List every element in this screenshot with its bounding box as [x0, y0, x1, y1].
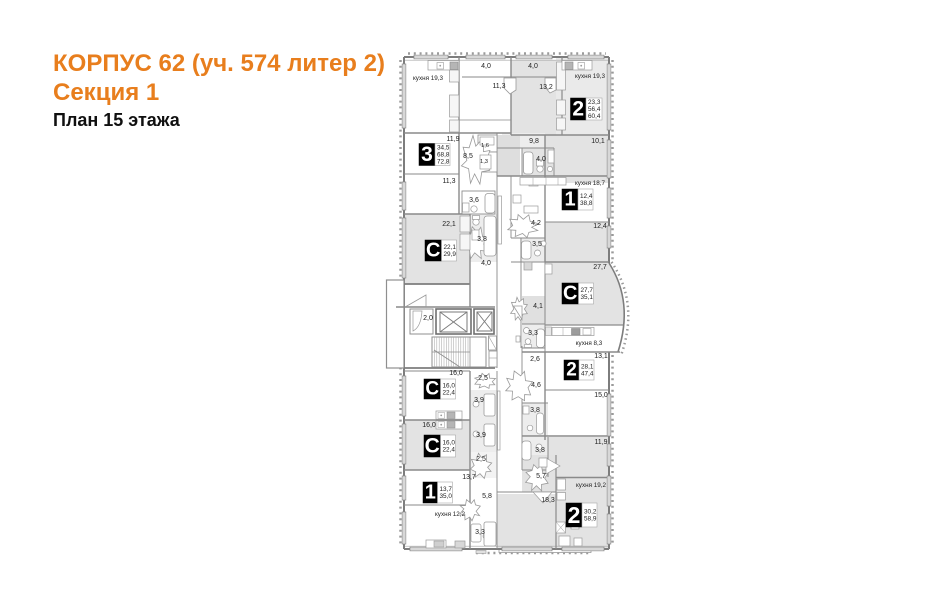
- svg-text:4,6: 4,6: [531, 382, 541, 389]
- svg-text:29,9: 29,9: [444, 251, 457, 258]
- svg-text:16,0: 16,0: [443, 440, 456, 447]
- svg-text:План 15 этажа: План 15 этажа: [53, 110, 181, 130]
- svg-text:2,0: 2,0: [423, 315, 433, 322]
- svg-text:Секция 1: Секция 1: [53, 79, 159, 106]
- svg-text:10,1: 10,1: [591, 138, 605, 145]
- svg-text:22,4: 22,4: [443, 390, 456, 397]
- svg-text:35,0: 35,0: [440, 493, 453, 500]
- svg-text:27,7: 27,7: [581, 287, 594, 294]
- svg-text:2: 2: [566, 360, 577, 381]
- svg-text:3: 3: [421, 143, 433, 166]
- svg-text:3,3: 3,3: [528, 330, 538, 337]
- svg-text:3,6: 3,6: [469, 197, 479, 204]
- svg-text:C: C: [425, 379, 439, 400]
- svg-text:C: C: [425, 435, 440, 458]
- svg-text:13,2: 13,2: [539, 84, 553, 91]
- svg-text:18,3: 18,3: [541, 497, 555, 504]
- svg-text:9,8: 9,8: [529, 138, 539, 145]
- svg-text:3,8: 3,8: [477, 236, 487, 243]
- svg-text:1: 1: [425, 482, 436, 504]
- svg-text:47,4: 47,4: [581, 371, 594, 378]
- svg-text:16,0: 16,0: [443, 383, 456, 390]
- svg-text:12,4: 12,4: [580, 193, 593, 200]
- svg-text:2,6: 2,6: [530, 356, 540, 363]
- svg-text:16,0: 16,0: [422, 422, 436, 429]
- svg-text:13,7: 13,7: [462, 474, 476, 481]
- svg-text:1: 1: [564, 189, 575, 211]
- svg-text:кухня 19,3: кухня 19,3: [575, 73, 606, 80]
- svg-text:1,6: 1,6: [481, 143, 489, 149]
- svg-text:60,4: 60,4: [588, 113, 601, 120]
- svg-text:22,1: 22,1: [442, 221, 456, 228]
- svg-text:13,7: 13,7: [440, 486, 453, 493]
- svg-text:12,4: 12,4: [593, 223, 607, 230]
- svg-text:22,1: 22,1: [444, 244, 457, 251]
- svg-text:5,8: 5,8: [482, 493, 492, 500]
- svg-text:11,9: 11,9: [446, 136, 459, 143]
- svg-text:35,1: 35,1: [581, 294, 594, 301]
- svg-text:56,4: 56,4: [588, 106, 601, 113]
- svg-text:4,1: 4,1: [533, 303, 543, 310]
- svg-text:2,5: 2,5: [478, 375, 488, 382]
- svg-text:2,5: 2,5: [476, 456, 486, 463]
- svg-text:27,7: 27,7: [593, 264, 607, 271]
- svg-text:5,7: 5,7: [536, 473, 546, 480]
- svg-text:4,0: 4,0: [481, 260, 491, 267]
- svg-text:3,8: 3,8: [530, 407, 540, 414]
- svg-text:3,9: 3,9: [474, 397, 484, 404]
- svg-text:3,5: 3,5: [532, 241, 542, 248]
- svg-text:28,1: 28,1: [581, 364, 594, 371]
- svg-text:11,9: 11,9: [594, 439, 607, 446]
- svg-text:кухня 19,2: кухня 19,2: [576, 482, 607, 489]
- svg-text:4,0: 4,0: [481, 63, 491, 70]
- svg-text:23,3: 23,3: [588, 99, 601, 106]
- svg-text:30,2: 30,2: [584, 509, 597, 516]
- svg-text:8,5: 8,5: [463, 153, 473, 160]
- svg-text:11,3: 11,3: [442, 178, 455, 185]
- svg-text:38,8: 38,8: [580, 200, 593, 207]
- svg-text:1,3: 1,3: [480, 159, 488, 165]
- svg-text:КОРПУС 62 (уч. 574 литер 2): КОРПУС 62 (уч. 574 литер 2): [53, 50, 385, 77]
- svg-text:22,4: 22,4: [443, 447, 456, 454]
- svg-text:кухня 19,3: кухня 19,3: [413, 75, 444, 82]
- svg-text:34,5: 34,5: [437, 145, 450, 152]
- svg-text:кухня 8,3: кухня 8,3: [576, 340, 603, 347]
- svg-text:3,3: 3,3: [475, 529, 485, 536]
- svg-text:15,0: 15,0: [594, 392, 608, 399]
- svg-text:2: 2: [572, 98, 584, 121]
- svg-text:16,0: 16,0: [449, 370, 463, 377]
- svg-text:68,8: 68,8: [437, 152, 450, 159]
- svg-text:C: C: [563, 283, 577, 305]
- svg-text:4,2: 4,2: [531, 220, 541, 227]
- svg-text:11,3: 11,3: [492, 83, 505, 90]
- svg-text:кухня 18,7: кухня 18,7: [575, 180, 606, 187]
- svg-text:72,8: 72,8: [437, 159, 450, 166]
- svg-text:3,9: 3,9: [476, 432, 486, 439]
- svg-text:кухня 12,2: кухня 12,2: [435, 511, 466, 518]
- svg-text:2: 2: [568, 502, 581, 528]
- svg-text:13,1: 13,1: [594, 353, 608, 360]
- svg-text:3,8: 3,8: [535, 447, 545, 454]
- svg-text:4,0: 4,0: [536, 156, 546, 163]
- svg-text:58,9: 58,9: [584, 516, 597, 523]
- svg-text:4,0: 4,0: [528, 63, 538, 70]
- svg-text:C: C: [426, 240, 440, 262]
